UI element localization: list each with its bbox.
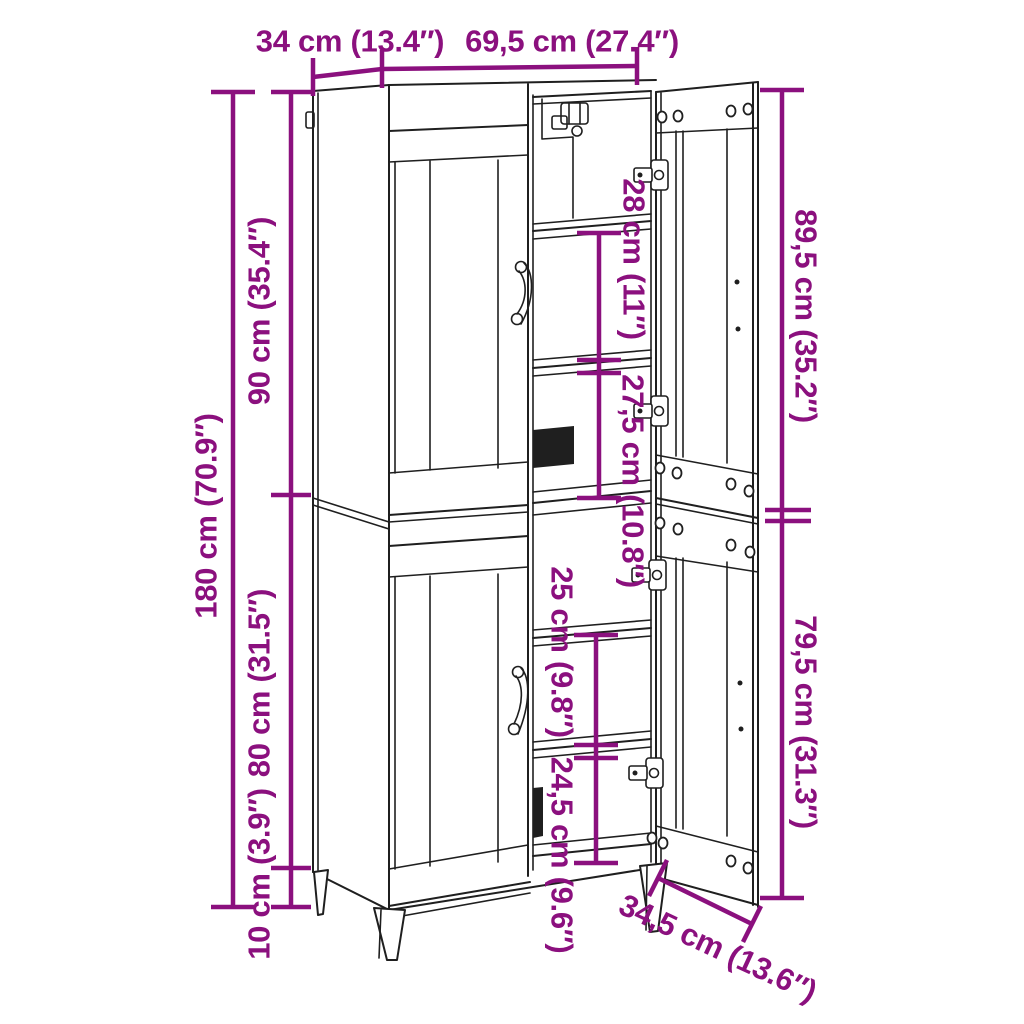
dim-label-lower-door-height: 79,5 cm (31.3″) <box>789 615 824 829</box>
dim-label-lower-shelf-spacing-1: 25 cm (9.8″) <box>545 566 580 738</box>
dim-label-top-width: 69,5 cm (27.4″) <box>465 24 679 59</box>
dim-label-upper-shelf-spacing-1: 28 cm (11″) <box>617 178 652 339</box>
back-left-leg <box>314 870 328 915</box>
left-segment-dimension-line <box>271 92 311 907</box>
shadow-strip <box>533 787 543 838</box>
upper-shelf-dimension-line <box>577 233 621 498</box>
cabinet-dimension-drawing: 34 cm (13.4″) 69,5 cm (27.4″) 180 cm (70… <box>0 0 1024 1024</box>
cabinet-side-panel <box>306 85 389 910</box>
shadow-panel <box>533 426 574 468</box>
dim-label-upper-door-height: 89,5 cm (35.2″) <box>789 209 824 423</box>
dim-label-upper-shelf-spacing-2: 27,5 cm (10.8″) <box>616 374 651 588</box>
dim-label-top-depth: 34 cm (13.4″) <box>256 24 444 59</box>
dimension-diagram: 34 cm (13.4″) 69,5 cm (27.4″) 180 cm (70… <box>0 0 1024 1024</box>
dim-label-total-height: 180 cm (70.9″) <box>189 413 224 618</box>
dim-label-upper-section-height: 90 cm (35.4″) <box>242 217 277 405</box>
dim-label-lower-section-height: 80 cm (31.5″) <box>242 589 277 777</box>
dim-label-leg-height: 10 cm (3.9″) <box>242 788 277 960</box>
door-screw-holes <box>648 104 755 874</box>
hinge-icon <box>629 758 663 788</box>
dim-label-lower-shelf-spacing-2: 24,5 cm (9.6″) <box>545 757 580 954</box>
cabinet-legs <box>314 863 667 960</box>
door-damper-hardware <box>552 103 588 136</box>
cabinet-line-drawing <box>306 80 758 960</box>
lower-shelf-dimension-line <box>574 635 618 863</box>
lower-left-door[interactable] <box>389 536 530 906</box>
upper-left-door[interactable] <box>389 125 532 522</box>
lower-door-handle[interactable] <box>509 667 528 735</box>
